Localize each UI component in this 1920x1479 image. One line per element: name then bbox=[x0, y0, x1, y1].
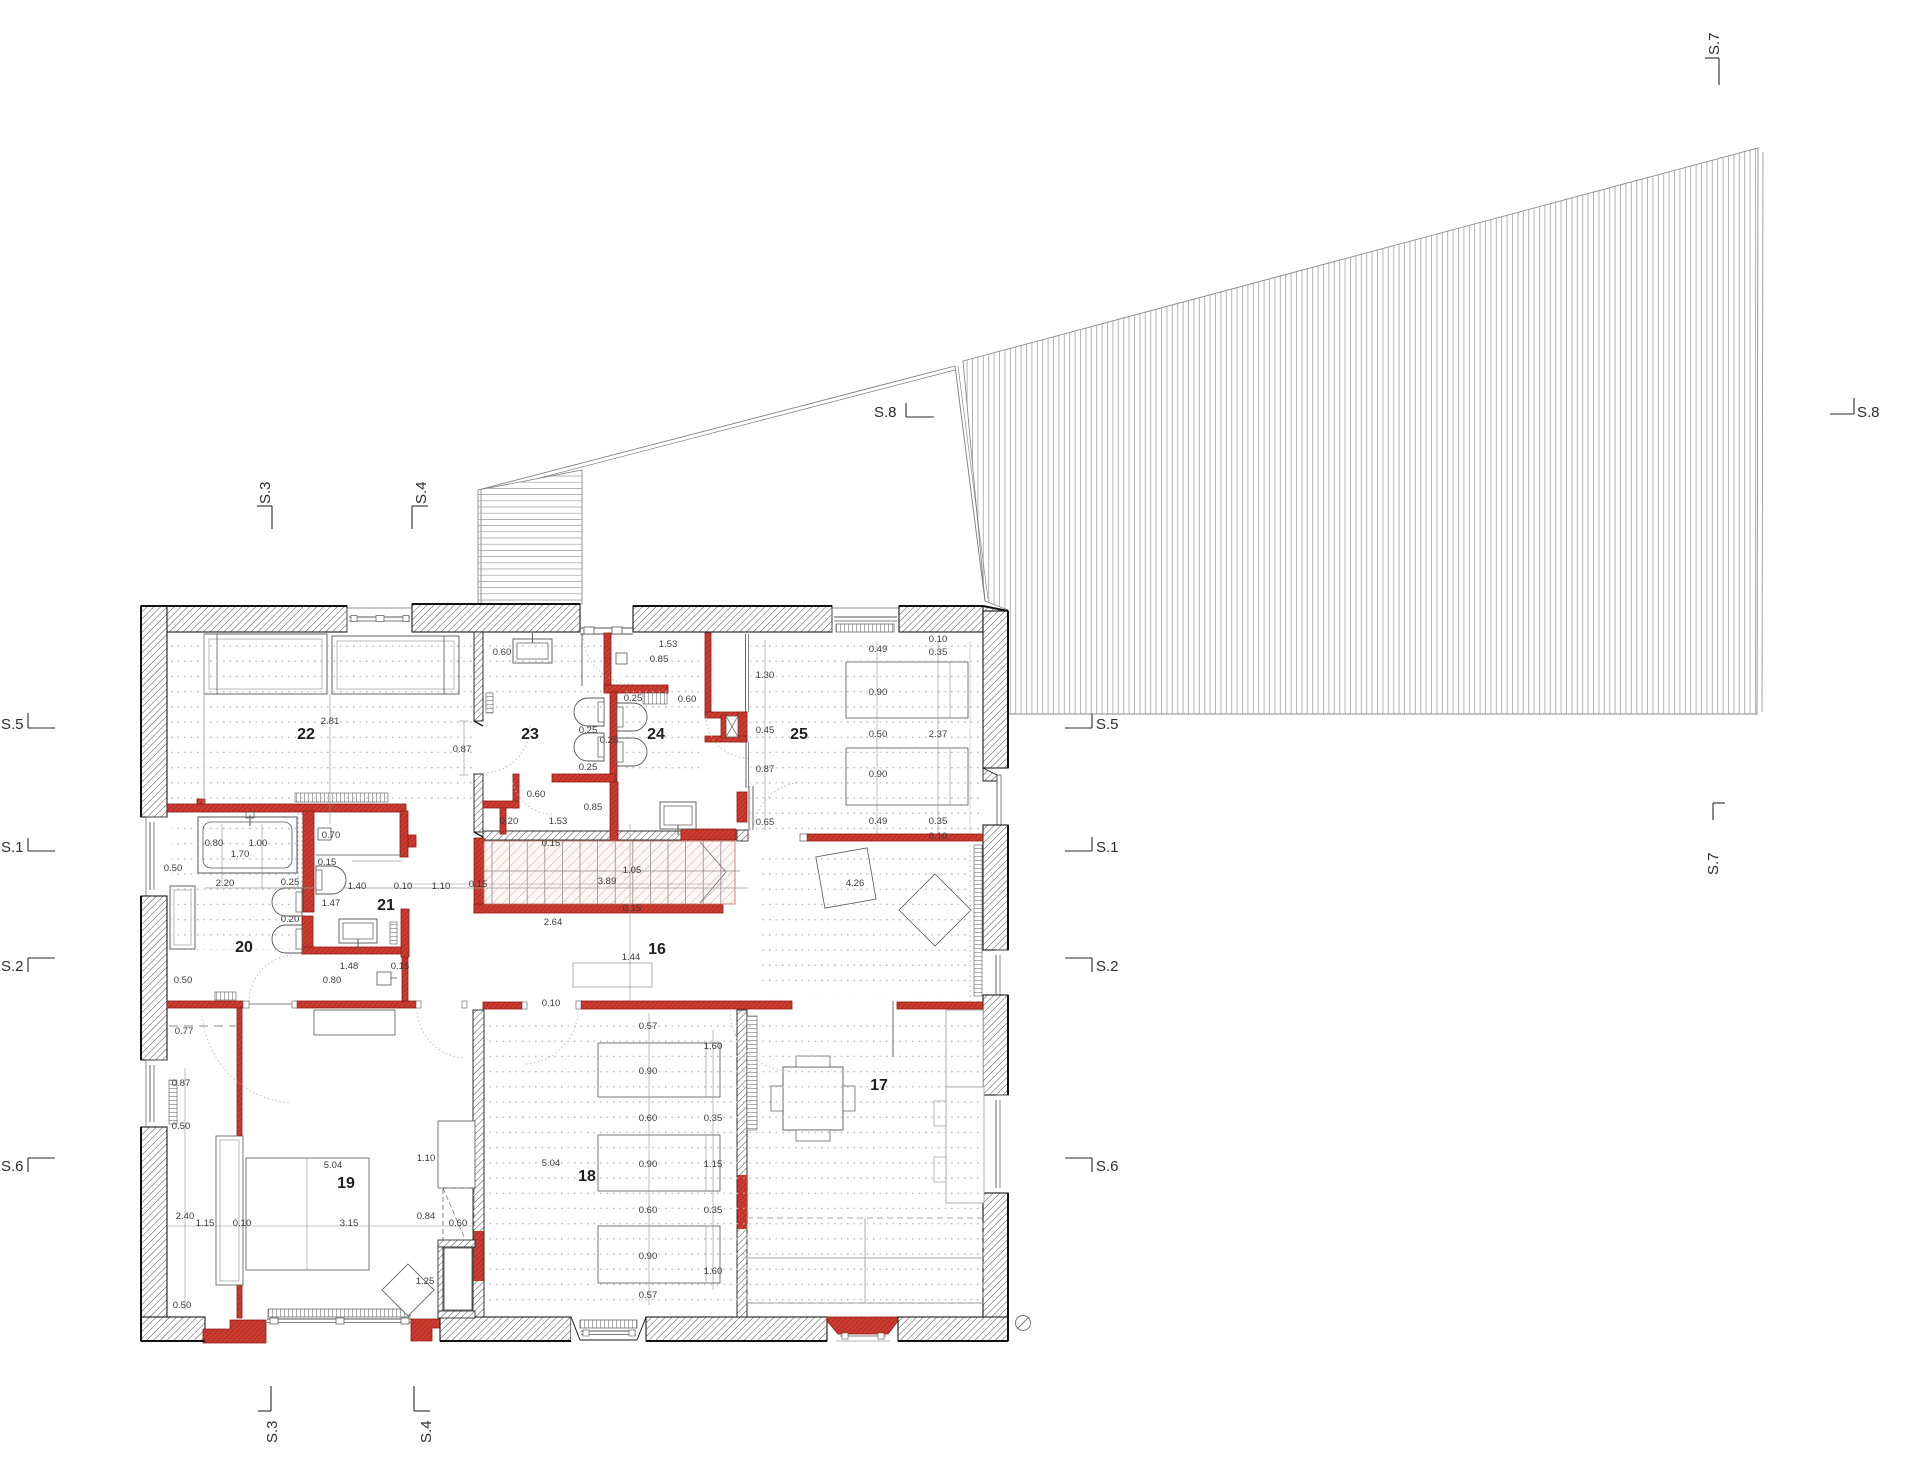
svg-text:S.2: S.2 bbox=[1096, 958, 1119, 975]
svg-text:1.40: 1.40 bbox=[348, 881, 367, 892]
svg-text:0.60: 0.60 bbox=[639, 1205, 658, 1216]
svg-text:1.53: 1.53 bbox=[659, 639, 678, 650]
svg-text:0.90: 0.90 bbox=[639, 1066, 658, 1077]
svg-text:1.15: 1.15 bbox=[704, 1159, 723, 1170]
svg-text:0.70: 0.70 bbox=[322, 830, 341, 841]
svg-text:0.90: 0.90 bbox=[869, 769, 888, 780]
svg-text:17: 17 bbox=[870, 1077, 888, 1094]
svg-text:0.60: 0.60 bbox=[527, 789, 546, 800]
svg-text:0.25: 0.25 bbox=[624, 693, 643, 704]
svg-text:5.04: 5.04 bbox=[542, 1158, 561, 1169]
svg-text:0.90: 0.90 bbox=[869, 687, 888, 698]
svg-text:0.10: 0.10 bbox=[233, 1218, 252, 1229]
svg-text:1.48: 1.48 bbox=[340, 961, 359, 972]
svg-text:0.60: 0.60 bbox=[449, 1218, 468, 1229]
svg-text:S.2: S.2 bbox=[1, 958, 24, 975]
svg-text:25: 25 bbox=[790, 726, 808, 743]
svg-text:0.35: 0.35 bbox=[929, 816, 948, 827]
svg-text:S.6: S.6 bbox=[1, 1158, 24, 1175]
svg-text:S.8: S.8 bbox=[1857, 404, 1880, 421]
svg-text:0.10: 0.10 bbox=[929, 634, 948, 645]
svg-text:S.4: S.4 bbox=[413, 481, 430, 504]
svg-text:0.25: 0.25 bbox=[281, 877, 300, 888]
svg-text:0.10: 0.10 bbox=[542, 998, 561, 1009]
svg-text:S.5: S.5 bbox=[1, 716, 24, 733]
svg-text:20: 20 bbox=[235, 939, 253, 956]
svg-text:21: 21 bbox=[377, 897, 395, 914]
svg-text:0.10: 0.10 bbox=[394, 881, 413, 892]
svg-text:1.30: 1.30 bbox=[756, 670, 775, 681]
svg-text:1.10: 1.10 bbox=[432, 881, 451, 892]
svg-text:0.90: 0.90 bbox=[639, 1251, 658, 1262]
svg-text:22: 22 bbox=[297, 726, 315, 743]
svg-text:2.40: 2.40 bbox=[176, 1211, 195, 1222]
svg-text:S.1: S.1 bbox=[1096, 839, 1119, 856]
svg-text:0.60: 0.60 bbox=[639, 1113, 658, 1124]
svg-text:0.49: 0.49 bbox=[869, 644, 888, 655]
svg-text:1.25: 1.25 bbox=[416, 1276, 435, 1287]
svg-text:0.80: 0.80 bbox=[205, 838, 224, 849]
svg-text:0.15: 0.15 bbox=[318, 857, 337, 868]
svg-text:0.87: 0.87 bbox=[172, 1078, 191, 1089]
svg-text:0.25: 0.25 bbox=[579, 762, 598, 773]
svg-text:0.15: 0.15 bbox=[469, 879, 488, 890]
svg-text:S.7: S.7 bbox=[1706, 32, 1723, 55]
svg-text:3.89: 3.89 bbox=[598, 876, 617, 887]
svg-text:0.15: 0.15 bbox=[623, 903, 642, 914]
svg-text:2.64: 2.64 bbox=[544, 917, 563, 928]
svg-text:2.20: 2.20 bbox=[216, 878, 235, 889]
svg-text:0.65: 0.65 bbox=[756, 817, 775, 828]
svg-text:0.77: 0.77 bbox=[175, 1026, 194, 1037]
svg-text:1.05: 1.05 bbox=[623, 865, 642, 876]
svg-text:S.4: S.4 bbox=[418, 1420, 435, 1443]
svg-text:1.10: 1.10 bbox=[417, 1153, 436, 1164]
svg-text:0.80: 0.80 bbox=[323, 975, 342, 986]
svg-text:5.04: 5.04 bbox=[324, 1160, 343, 1171]
svg-text:0.87: 0.87 bbox=[756, 764, 775, 775]
svg-text:0.35: 0.35 bbox=[704, 1113, 723, 1124]
svg-text:0.10: 0.10 bbox=[929, 831, 948, 842]
svg-text:0.45: 0.45 bbox=[756, 725, 775, 736]
svg-text:19: 19 bbox=[337, 1175, 355, 1192]
svg-text:0.85: 0.85 bbox=[650, 654, 669, 665]
svg-text:2.37: 2.37 bbox=[929, 729, 948, 740]
svg-text:0.60: 0.60 bbox=[493, 647, 512, 658]
svg-text:0.84: 0.84 bbox=[417, 1211, 436, 1222]
svg-text:S.8: S.8 bbox=[874, 404, 897, 421]
svg-text:S.1: S.1 bbox=[1, 839, 24, 856]
svg-text:S.6: S.6 bbox=[1096, 1158, 1119, 1175]
svg-text:S.7: S.7 bbox=[1705, 852, 1722, 875]
svg-text:0.49: 0.49 bbox=[869, 816, 888, 827]
svg-text:0.50: 0.50 bbox=[174, 975, 193, 986]
svg-text:S.3: S.3 bbox=[257, 481, 274, 504]
svg-text:0.87: 0.87 bbox=[453, 744, 472, 755]
svg-text:0.25: 0.25 bbox=[600, 735, 619, 746]
svg-text:1.15: 1.15 bbox=[196, 1218, 215, 1229]
svg-text:0.35: 0.35 bbox=[929, 647, 948, 658]
svg-text:1.44: 1.44 bbox=[622, 952, 641, 963]
svg-text:1.60: 1.60 bbox=[704, 1266, 723, 1277]
svg-text:16: 16 bbox=[648, 941, 666, 958]
svg-text:0.15: 0.15 bbox=[391, 961, 410, 972]
svg-text:S.5: S.5 bbox=[1096, 716, 1119, 733]
svg-text:4.26: 4.26 bbox=[846, 878, 865, 889]
svg-text:0.35: 0.35 bbox=[704, 1205, 723, 1216]
svg-text:1.60: 1.60 bbox=[704, 1041, 723, 1052]
svg-text:0.90: 0.90 bbox=[639, 1159, 658, 1170]
svg-text:S.3: S.3 bbox=[264, 1420, 281, 1443]
svg-text:1.47: 1.47 bbox=[322, 898, 341, 909]
svg-text:0.25: 0.25 bbox=[579, 725, 598, 736]
svg-text:23: 23 bbox=[521, 726, 539, 743]
svg-text:24: 24 bbox=[647, 726, 665, 743]
svg-text:1.00: 1.00 bbox=[249, 838, 268, 849]
svg-text:0.50: 0.50 bbox=[164, 863, 183, 874]
svg-text:0.20: 0.20 bbox=[500, 816, 519, 827]
svg-text:0.50: 0.50 bbox=[869, 729, 888, 740]
svg-text:0.57: 0.57 bbox=[639, 1290, 658, 1301]
svg-text:0.85: 0.85 bbox=[584, 802, 603, 813]
svg-text:0.50: 0.50 bbox=[173, 1300, 192, 1311]
svg-text:0.20: 0.20 bbox=[281, 914, 300, 925]
svg-text:2.81: 2.81 bbox=[321, 716, 340, 727]
svg-text:1.70: 1.70 bbox=[231, 849, 250, 860]
svg-text:0.60: 0.60 bbox=[678, 694, 697, 705]
svg-text:3.15: 3.15 bbox=[340, 1218, 359, 1229]
svg-text:1.53: 1.53 bbox=[549, 816, 568, 827]
svg-text:0.50: 0.50 bbox=[172, 1121, 191, 1132]
svg-text:18: 18 bbox=[578, 1168, 596, 1185]
svg-text:0.15: 0.15 bbox=[542, 838, 561, 849]
svg-text:0.57: 0.57 bbox=[639, 1021, 658, 1032]
